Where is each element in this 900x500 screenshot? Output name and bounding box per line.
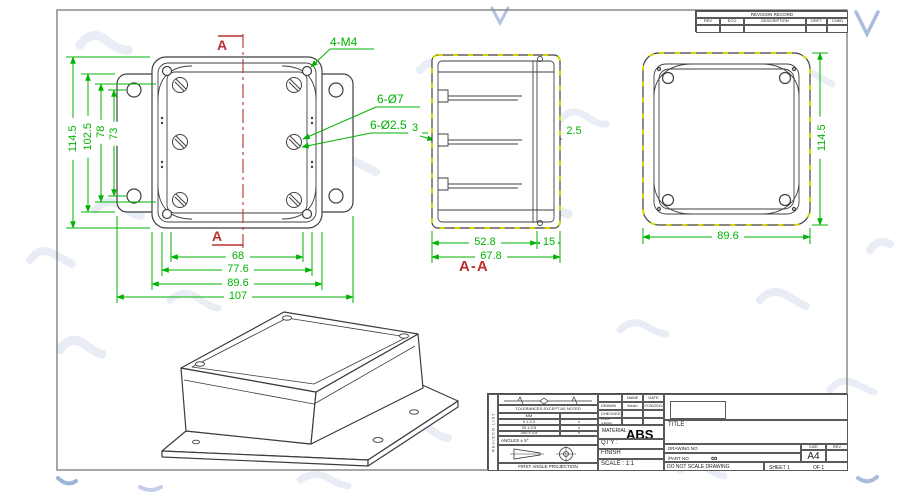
callout-6-d2-5: 6-Ø2.5 bbox=[369, 119, 408, 132]
callout-6-d7: 6-Ø7 bbox=[376, 93, 405, 106]
revision-col-rev: REV bbox=[696, 18, 720, 25]
revision-row-empty-description bbox=[744, 25, 806, 33]
qty-cell: QT'Y : bbox=[598, 439, 664, 449]
revision-record-table: REVISION RECORD REV ECO DESCRIPTION DRFT… bbox=[695, 10, 847, 32]
checked-name bbox=[622, 410, 643, 418]
right-view bbox=[643, 53, 810, 225]
surface-finish-cell bbox=[498, 394, 598, 405]
dim-right-height: 114.5 bbox=[817, 117, 829, 159]
date-header: DATE bbox=[643, 394, 664, 402]
projection-symbol-cell bbox=[498, 445, 598, 463]
finish-cell: FINISH bbox=[598, 449, 664, 459]
section-letter-bottom: A bbox=[212, 229, 222, 243]
dim-front-width-inner: 68 bbox=[226, 251, 250, 263]
projection-label: FIRST ANGLE PROJECTION bbox=[498, 463, 598, 471]
revision-col-description: DESCRIPTION bbox=[744, 18, 806, 25]
revision-col-eco: ECO bbox=[720, 18, 744, 25]
drawn-label: DRAWN bbox=[598, 402, 622, 410]
title-block-side-strip: REV/ECO LIST bbox=[488, 394, 498, 471]
checked-label: CHECKED bbox=[598, 410, 622, 418]
revision-row-empty-rev bbox=[696, 25, 720, 33]
dim-section-wall-right: 2.5 bbox=[562, 126, 586, 138]
dim-section-flange: 15 bbox=[540, 237, 558, 249]
first-angle-projection-icon bbox=[500, 446, 596, 462]
revision-col-chkd: CHKD bbox=[827, 18, 848, 25]
checked-date bbox=[643, 410, 664, 418]
do-not-scale-note: DO NOT SCALE DRAWING bbox=[664, 462, 764, 471]
section-view-label: A-A bbox=[459, 259, 489, 274]
material-cell: MATERIAL : ABS bbox=[598, 425, 664, 439]
isometric-view bbox=[162, 312, 458, 466]
eng-appr-date bbox=[643, 418, 664, 425]
name-header: NAME bbox=[622, 394, 643, 402]
logo-box bbox=[670, 401, 726, 419]
sheet-cell: SHEET 1 OF 1 bbox=[764, 462, 848, 471]
surface-finish-symbols bbox=[500, 395, 596, 405]
dim-front-width-flange: 107 bbox=[224, 291, 252, 303]
sheet-label: SHEET 1 bbox=[769, 465, 790, 471]
approvals-corner-cell bbox=[598, 394, 622, 402]
dim-front-width-box: 89.6 bbox=[222, 278, 254, 290]
section-letter-top: A bbox=[217, 38, 227, 52]
dim-front-width-mid: 77.6 bbox=[222, 264, 254, 276]
dim-front-height-inner: 78 bbox=[96, 120, 108, 144]
revision-table-title: REVISION RECORD bbox=[696, 11, 848, 18]
dim-front-height-overall: 114.5 bbox=[68, 118, 80, 160]
eng-appr-label: ENG APPR bbox=[598, 418, 622, 425]
dim-section-inner-width: 52.8 bbox=[469, 237, 501, 249]
revision-row-empty-chkd bbox=[827, 25, 848, 33]
title-block: REV/ECO LIST TOLERANCES EXCEPT AS NOTED … bbox=[487, 393, 847, 470]
drawn-date: 07/30/2015 bbox=[643, 402, 664, 410]
part-no-label: /PART NO bbox=[668, 456, 689, 461]
dim-front-height-flange: 102.5 bbox=[83, 116, 95, 158]
sheet-of-label: OF 1 bbox=[813, 465, 824, 471]
tolerance-note: TOLERANCES EXCEPT AS NOTED bbox=[498, 405, 598, 413]
logo-area bbox=[664, 394, 848, 420]
size-value: A4 bbox=[801, 450, 826, 462]
title-cell: TITLE bbox=[664, 420, 848, 444]
drawn-name: Kevin bbox=[622, 402, 643, 410]
angles-tolerance: ANGLES ± 5° bbox=[498, 436, 598, 445]
section-view bbox=[432, 55, 560, 228]
revision-col-drft: DRFT bbox=[806, 18, 827, 25]
revision-row-empty-drft bbox=[806, 25, 827, 33]
part-no-value: ∞ bbox=[711, 453, 717, 462]
material-value: ABS bbox=[626, 427, 653, 439]
part-no-cell: /PART NO ∞ bbox=[664, 453, 801, 462]
material-label: MATERIAL : bbox=[599, 427, 629, 434]
engineering-drawing-sheet: 114.5 102.5 78 73 68 77.6 89.6 107 4-M4 … bbox=[0, 0, 900, 500]
rev-value bbox=[826, 450, 848, 462]
eng-appr-name bbox=[622, 418, 643, 425]
dim-section-wall-left: 3 bbox=[408, 123, 422, 135]
dim-front-hole-spacing: 73 bbox=[109, 122, 121, 146]
dim-right-width: 89.6 bbox=[712, 231, 744, 243]
revision-row-empty-eco bbox=[720, 25, 744, 33]
callout-4-m4: 4-M4 bbox=[329, 36, 358, 49]
drawing-no-cell: DRAWING NO bbox=[664, 444, 801, 453]
scale-cell: SCALE : 1:1 bbox=[598, 459, 664, 471]
